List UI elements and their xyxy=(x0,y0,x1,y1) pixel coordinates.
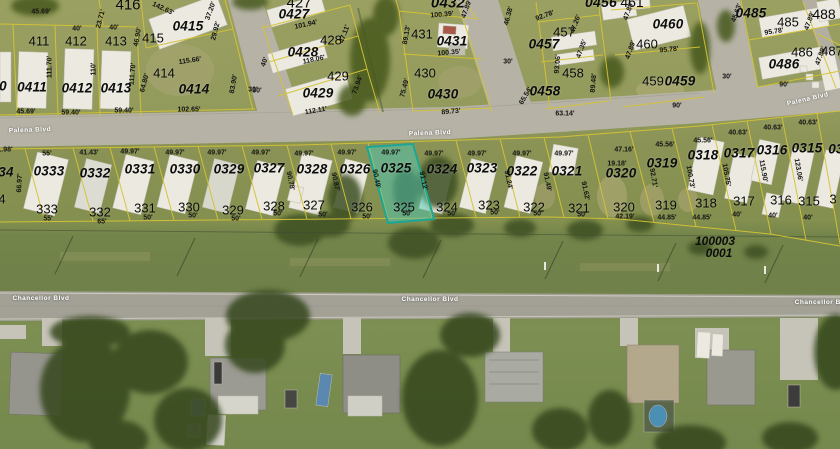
label-lotid-0458: 0458 xyxy=(530,84,561,98)
label-lotid-0329: 0329 xyxy=(214,162,245,176)
label-num-333: 333 xyxy=(36,203,58,216)
label-dim-6314: 63.14' xyxy=(555,111,574,118)
label-num-460: 460 xyxy=(636,38,658,51)
label-dim-110: 110' xyxy=(91,63,98,76)
label-num-326: 326 xyxy=(351,201,373,214)
label-num-315: 315 xyxy=(798,195,820,208)
label-dim-50: 50' xyxy=(318,212,327,219)
label-lotid-0325: 0325 xyxy=(381,161,412,175)
label-dim-11211: 112.11' xyxy=(304,106,327,117)
label-dim-10035: 100.35' xyxy=(437,49,461,58)
label-num-327: 327 xyxy=(303,199,325,212)
label-dim-14263: 142.63' xyxy=(151,1,175,17)
label-dim-10265: 102.65' xyxy=(177,107,200,114)
label-dim-50: 50' xyxy=(362,214,371,221)
label-lotid-0415: 0415 xyxy=(173,19,204,33)
label-lotid-0431: 0431 xyxy=(437,34,468,48)
label-dim-50: 50' xyxy=(447,211,456,218)
label-num-430: 430 xyxy=(414,67,436,80)
label-num-431: 431 xyxy=(411,28,433,41)
label-dim-50: 50' xyxy=(490,210,499,217)
label-dim-90: 90' xyxy=(672,103,681,110)
label-dim-12306: 123.06' xyxy=(793,158,804,182)
label-lotid-0321: 0321 xyxy=(552,164,583,178)
label-num-317: 317 xyxy=(733,195,755,208)
label-dim-4726: 47.26' xyxy=(569,14,582,34)
label-lotid-0330: 0330 xyxy=(170,162,201,176)
label-dim-8390: 83.90' xyxy=(229,74,239,94)
label-num-332: 332 xyxy=(89,206,111,219)
label-lotid-0315: 0315 xyxy=(792,141,823,155)
label-plss-0001: 0001 xyxy=(706,247,733,259)
label-num-414: 414 xyxy=(153,67,175,80)
label-lotid-0456: 0456 xyxy=(585,0,617,9)
label-lotid-0432: 0432 xyxy=(431,0,465,11)
label-dim-30: 30' xyxy=(722,74,731,81)
label-dim-4997: 49.97' xyxy=(337,150,356,157)
label-dim-11170: 111.70' xyxy=(47,56,54,78)
label-dim-90: 90' xyxy=(779,82,788,89)
label-dim-4638: 46.38' xyxy=(503,6,515,26)
label-street-PalenaBlvd: Palena Blvd xyxy=(409,130,452,138)
label-lotid-0457: 0457 xyxy=(529,37,560,51)
label-dim-9271: 92.71' xyxy=(648,168,658,188)
label-dim-9278: 92.78' xyxy=(535,9,555,22)
label-dim-50: 50' xyxy=(143,215,152,222)
label-dim-50: 50' xyxy=(273,211,282,218)
label-dim-40: 40' xyxy=(72,26,81,33)
label-num-413: 413 xyxy=(105,35,127,48)
label-lotid-0328: 0328 xyxy=(297,162,328,176)
label-num-316: 316 xyxy=(770,194,792,207)
label-dim-4997: 49.97' xyxy=(424,151,443,158)
label-dim-4219: 42.19' xyxy=(615,214,634,221)
label-dim-9306: 93.06' xyxy=(554,54,563,74)
label-num-3: 3 xyxy=(829,193,836,206)
label-lotid-0333: 0333 xyxy=(34,164,65,178)
label-dim-4997: 49.97' xyxy=(207,150,226,157)
label-dim-4485: 44.85' xyxy=(692,215,711,222)
label-lotid-0320: 0320 xyxy=(606,166,637,180)
label-lotid-0429: 0429 xyxy=(303,86,334,100)
label-street-ChancellorBlvd: Chancellor Blvd xyxy=(13,296,70,303)
label-lotid-0413: 0413 xyxy=(101,81,132,95)
label-dim-11590: 115.90' xyxy=(758,159,769,183)
label-dim-4485: 44.85' xyxy=(657,215,676,222)
label-dim-198: 1.98' xyxy=(0,147,13,154)
label-dim-8973: 89.73' xyxy=(441,108,461,117)
label-dim-4735: 47.35' xyxy=(575,39,588,59)
label-dim-7549: 75.49' xyxy=(399,78,411,98)
label-dim-4569: 45.69' xyxy=(31,9,50,16)
label-dim-4716: 47.16' xyxy=(614,147,633,154)
label-dim-11170: 111.70' xyxy=(129,63,138,86)
label-dim-5940: 59.40' xyxy=(61,110,80,117)
label-dim-4063: 40.63' xyxy=(798,120,817,127)
label-dim-10073: 100.73' xyxy=(685,165,696,189)
label-dim-6697: 66.97' xyxy=(16,173,24,193)
label-dim-4997: 49.97' xyxy=(251,150,270,157)
label-dim-4556: 45.56' xyxy=(655,142,674,149)
label-num-331: 331 xyxy=(134,202,156,215)
label-num-415: 415 xyxy=(142,32,164,45)
label-num-319: 319 xyxy=(655,199,677,212)
label-street-ChancellorBlv: Chancellor Blv xyxy=(795,300,840,307)
label-dim-30: 30' xyxy=(503,59,512,66)
label-dim-2992: 29.92' xyxy=(210,21,222,41)
label-dim-50: 50' xyxy=(402,211,411,218)
label-dim-40: 40' xyxy=(803,215,812,222)
label-lotid-0316: 0316 xyxy=(757,143,788,157)
label-dim-50: 50' xyxy=(577,212,586,219)
label-lotid-0459: 0459 xyxy=(665,74,696,88)
label-dim-11566: 115.66' xyxy=(178,56,201,66)
label-lotid-0430: 0430 xyxy=(428,87,459,101)
label-dim-4997: 49.97' xyxy=(294,151,313,158)
label-dim-9578: 95.78' xyxy=(659,46,679,55)
label-lotid-0322: 0322 xyxy=(507,164,538,178)
label-dim-4063: 40.63' xyxy=(728,130,747,137)
label-num-320: 320 xyxy=(613,201,635,214)
label-dim-4997: 49.97' xyxy=(381,150,400,157)
label-dim-4997: 49.97' xyxy=(467,151,486,158)
label-dim-4569: 45.69' xyxy=(16,109,35,116)
label-num-411: 411 xyxy=(29,35,50,48)
label-num-458: 458 xyxy=(562,67,584,80)
label-dim-1918: 19.18' xyxy=(607,161,626,168)
label-lotid-0317: 0317 xyxy=(724,146,755,160)
label-lotid-0414: 0414 xyxy=(179,82,210,96)
label-dim-8948: 89.48' xyxy=(590,73,599,93)
label-num-429: 429 xyxy=(327,70,349,83)
label-num-4: 4 xyxy=(0,193,6,206)
aerial-parcel-map[interactable]: 4160415415411412413414041104120413041404… xyxy=(0,0,840,449)
label-dim-10039: 100.39' xyxy=(430,11,454,20)
label-lotid-0327: 0327 xyxy=(254,161,285,175)
label-dim-55: 55' xyxy=(43,216,52,223)
label-lotid-0486: 0486 xyxy=(769,57,800,71)
label-dim-50: 50' xyxy=(533,211,542,218)
label-street-ChancellorBlvd: Chancellor Blvd xyxy=(402,297,459,304)
label-dim-30: 30' xyxy=(252,88,261,95)
label-num-412: 412 xyxy=(65,35,87,48)
label-num-416: 416 xyxy=(115,0,140,13)
label-dim-4711: 47.11' xyxy=(338,24,351,44)
label-dim-50: 50' xyxy=(231,216,240,223)
label-dim-55: 55' xyxy=(42,151,51,158)
label-dim-4997: 49.97' xyxy=(512,151,531,158)
label-num-459: 459 xyxy=(642,75,664,88)
label-dim-4143: 41.43' xyxy=(79,150,98,157)
label-dim-5940: 59.40' xyxy=(114,108,133,115)
label-dim-4997: 49.97' xyxy=(554,151,573,158)
label-dim-40: 40' xyxy=(109,25,118,32)
label-lotid-0331: 0331 xyxy=(125,162,156,176)
label-lotid-0411: 0411 xyxy=(17,80,47,94)
label-dim-9578: 95.78' xyxy=(764,27,784,37)
label-dim-40: 40' xyxy=(260,56,270,67)
label-lotid-0412: 0412 xyxy=(62,81,93,95)
label-dim-50: 50' xyxy=(188,213,197,220)
label-lotid-34: 34 xyxy=(0,165,14,179)
label-lotid-03: 03 xyxy=(828,142,840,156)
label-lotid-0318: 0318 xyxy=(688,148,719,162)
label-dim-7394: 73.94' xyxy=(351,75,364,95)
label-lotid-0332: 0332 xyxy=(80,166,111,180)
label-num-318: 318 xyxy=(695,197,717,210)
label-lotid-0: 0 xyxy=(0,79,7,93)
label-lotid-0324: 0324 xyxy=(427,162,458,176)
label-lotid-0427: 0427 xyxy=(279,7,310,21)
label-lotid-0460: 0460 xyxy=(653,17,684,31)
label-dim-65: 65' xyxy=(97,219,106,226)
label-dim-4063: 40.63' xyxy=(763,125,782,132)
label-dim-40: 40' xyxy=(768,213,777,220)
map-labels-layer: 4160415415411412413414041104120413041404… xyxy=(0,0,840,449)
label-dim-40: 40' xyxy=(732,212,741,219)
label-lotid-0326: 0326 xyxy=(340,162,371,176)
label-lotid-0323: 0323 xyxy=(467,161,498,175)
label-dim-2371: 23.71' xyxy=(95,9,107,29)
label-dim-4556: 45.56' xyxy=(693,138,712,145)
label-dim-10575: 105.75' xyxy=(721,163,732,187)
label-street-PalenaBlvd: Palena Blvd xyxy=(787,92,830,108)
label-dim-3720: 37.20' xyxy=(204,1,217,21)
label-dim-9162: 91.62' xyxy=(580,181,591,201)
label-dim-6480: 64.80' xyxy=(139,73,151,93)
label-dim-4997: 49.97' xyxy=(165,150,184,157)
label-dim-4997: 49.97' xyxy=(120,149,139,156)
label-street-PalenaBlvd: Palena Blvd xyxy=(9,127,52,135)
label-dim-9078: 90.78' xyxy=(285,171,296,191)
